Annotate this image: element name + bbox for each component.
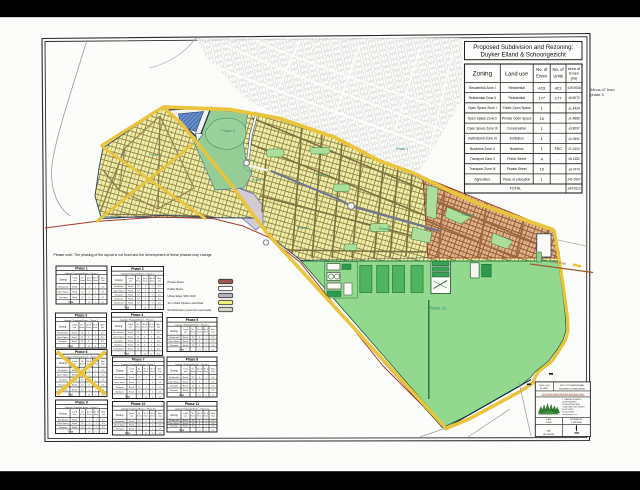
svg-text:Zoning: Zoning — [115, 279, 123, 282]
svg-text:Total: Total — [179, 429, 185, 432]
svg-text:Legend / Proposed Erven – Phas: Legend / Proposed Erven – Phase 6 — [64, 355, 98, 358]
svg-text:Residential: Residential — [114, 331, 124, 334]
svg-text:Legend / Proposed Erven – Phas: Legend / Proposed Erven – Phase 9 — [65, 406, 99, 409]
svg-text:Erven: Erven — [144, 370, 148, 373]
svg-text:Area: Area — [158, 367, 162, 370]
svg-text:Phase 3: Phase 3 — [149, 153, 162, 157]
svg-text:Resid.: Resid. — [129, 425, 135, 427]
svg-text:30 m Wide Pipeline and Road: 30 m Wide Pipeline and Road — [168, 301, 204, 305]
svg-text:±1.0591: ±1.0591 — [568, 137, 580, 141]
svg-text:Business: Business — [510, 147, 524, 151]
svg-text:Resid.: Resid. — [72, 419, 78, 421]
svg-text:(ha): (ha) — [102, 414, 105, 416]
svg-text:±41.0007: ±41.0007 — [567, 178, 580, 182]
svg-text:Phase 9: Phase 9 — [252, 178, 265, 182]
svg-text:TBC: TBC — [554, 146, 562, 151]
svg-text:SCALE: SCALE — [546, 421, 553, 424]
svg-text:A1 SHEET: A1 SHEET — [540, 387, 548, 390]
svg-text:Transport: Transport — [59, 296, 68, 299]
svg-text:Phase 9: Phase 9 — [75, 401, 88, 405]
svg-text:Phase 7: Phase 7 — [132, 358, 145, 362]
svg-text:Resid.: Resid. — [72, 297, 78, 299]
svg-text:Erven: Erven — [144, 414, 148, 417]
svg-text:Residential: Residential — [509, 96, 526, 100]
svg-text:Phase 5: Phase 5 — [186, 318, 199, 322]
svg-text:Resid.: Resid. — [128, 341, 134, 343]
svg-text:Phase 3: Phase 3 — [75, 314, 88, 318]
svg-text:Resid.: Resid. — [128, 303, 134, 305]
svg-text:Residential Zone I: Residential Zone I — [469, 86, 496, 90]
svg-text:177: 177 — [555, 96, 562, 101]
svg-text:Total: Total — [68, 393, 74, 396]
svg-text:Open Space: Open Space — [168, 381, 180, 383]
svg-text:177: 177 — [538, 96, 545, 101]
svg-text:Area: Area — [211, 328, 215, 331]
svg-text:Place of education: Place of education — [503, 177, 530, 181]
svg-text:10: 10 — [539, 167, 544, 172]
svg-text:Please note: The phasing of th: Please note: The phasing of the layout i… — [54, 253, 213, 257]
svg-text:Residential Zone II: Residential Zone II — [469, 96, 497, 100]
svg-text:Resid.: Resid. — [129, 387, 135, 389]
svg-text:Residential: Residential — [114, 285, 124, 288]
svg-text:Erven: Erven — [197, 370, 201, 373]
svg-text:Institutional: Institutional — [114, 348, 125, 351]
svg-text:Transport: Transport — [170, 344, 179, 347]
svg-text:Resid.: Resid. — [72, 287, 78, 289]
svg-text:Open Space: Open Space — [58, 292, 70, 294]
svg-text:Open Space: Open Space — [57, 375, 69, 377]
svg-text:Resid.: Resid. — [183, 341, 189, 343]
svg-text:Phase 6: Phase 6 — [462, 213, 475, 217]
svg-text:Phase 2: Phase 2 — [379, 227, 392, 231]
svg-text:Legend / Proposed Erven – Phas: Legend / Proposed Erven – Phase 2 — [121, 272, 155, 275]
svg-text:Total: Total — [179, 394, 185, 397]
svg-text:Area: Area — [211, 367, 215, 370]
svg-text:Legend / Proposed Erven – Phas: Legend / Proposed Erven – Phase 7 — [121, 363, 155, 366]
svg-text:(ha): (ha) — [571, 76, 578, 80]
svg-text:Erven: Erven — [569, 72, 579, 76]
svg-text:K. MADIKANE: K. MADIKANE — [571, 421, 583, 424]
svg-text:DESIGNED BY: DESIGNED BY — [570, 419, 583, 421]
svg-text:Erven: Erven — [94, 279, 98, 282]
svg-text:Area of: Area of — [568, 67, 581, 71]
svg-text:Erven: Erven — [204, 414, 208, 417]
svg-text:Resid.: Resid. — [129, 428, 135, 430]
svg-text:Business: Business — [116, 392, 124, 394]
svg-text:ERF 2712 FISANTEKRAAL: ERF 2712 FISANTEKRAAL — [560, 384, 585, 387]
svg-text:Transport Zone II: Transport Zone II — [470, 157, 495, 161]
svg-text:Resid.: Resid. — [72, 385, 78, 387]
svg-text:Public Street: Public Street — [168, 287, 183, 291]
svg-text:Transport: Transport — [58, 340, 67, 343]
svg-text:No. of: No. of — [536, 67, 548, 72]
svg-text:SCALE 1:2500: SCALE 1:2500 — [539, 384, 550, 387]
svg-text:Zoning: Zoning — [116, 369, 124, 372]
svg-text:Area: Area — [158, 277, 162, 280]
svg-text:Resid.: Resid. — [72, 427, 78, 429]
svg-text:Erven: Erven — [80, 413, 84, 416]
svg-text:Business: Business — [170, 390, 178, 392]
svg-text:Resid.: Resid. — [183, 377, 189, 379]
svg-text:Open Space Zone III: Open Space Zone III — [467, 127, 498, 131]
svg-text:Business: Business — [115, 345, 123, 347]
svg-text:Residential: Residential — [58, 369, 68, 372]
svg-text:(ha): (ha) — [158, 371, 161, 373]
svg-text:Erven: Erven — [191, 414, 195, 417]
svg-text:Open Space: Open Space — [113, 336, 125, 338]
svg-text:Private Street: Private Street — [507, 167, 527, 171]
svg-text:Erven: Erven — [94, 413, 98, 416]
svg-text:Resid.: Resid. — [183, 381, 189, 383]
svg-text:Conservation: Conservation — [507, 127, 527, 131]
svg-text:info@planning.co.za: info@planning.co.za — [562, 414, 577, 416]
svg-text:Phase 8: Phase 8 — [186, 358, 199, 362]
svg-text:Duyker Elland & Schoongezicht: Duyker Elland & Schoongezicht — [481, 51, 567, 58]
svg-text:Phase 2: Phase 2 — [131, 267, 144, 271]
svg-text:Erven: Erven — [137, 414, 141, 417]
svg-text:Residential: Residential — [115, 420, 125, 423]
svg-text:Public Open Space: Public Open Space — [503, 106, 531, 110]
svg-text:Private Open Space: Private Open Space — [502, 116, 532, 120]
svg-text:Residential: Residential — [169, 336, 179, 339]
svg-text:Erven: Erven — [80, 326, 84, 329]
svg-text:Resid.: Resid. — [129, 392, 135, 394]
svg-text:Total: Total — [125, 432, 131, 435]
svg-text:Minus 47 from: Minus 47 from — [591, 88, 615, 92]
svg-text:Transport Zone III: Transport Zone III — [469, 167, 495, 171]
svg-text:Erven: Erven — [536, 73, 548, 78]
svg-text:Legend / Proposed Erven – Phas: Legend / Proposed Erven – Phase 11 — [175, 407, 210, 410]
svg-text:Public Street: Public Street — [507, 157, 526, 161]
svg-text:Residential: Residential — [58, 286, 68, 289]
svg-text:PROPOSED SUBDIVISION AND REZON: PROPOSED SUBDIVISION AND REZONING PLAN — [542, 393, 584, 396]
svg-text:Area: Area — [158, 412, 162, 415]
svg-text:Phase 6: Phase 6 — [75, 350, 88, 354]
svg-text:Resid.: Resid. — [128, 286, 134, 288]
svg-text:Erven: Erven — [191, 330, 195, 333]
svg-text:Institutional: Institutional — [114, 302, 125, 305]
svg-text:423: 423 — [555, 85, 562, 90]
svg-text:Open Space: Open Space — [113, 290, 125, 292]
svg-text:Zoning: Zoning — [59, 325, 67, 328]
svg-text:Transport: Transport — [115, 427, 124, 430]
svg-text:Zoning: Zoning — [59, 278, 67, 281]
svg-text:Area: Area — [101, 323, 105, 326]
svg-text:Open Space: Open Space — [114, 425, 126, 427]
svg-text:Resid.: Resid. — [72, 333, 78, 335]
svg-text:Residential: Residential — [509, 86, 526, 90]
svg-text:Phase 10: Phase 10 — [131, 402, 145, 406]
svg-text:Resid.: Resid. — [128, 349, 134, 351]
svg-text:10: 10 — [539, 116, 544, 121]
svg-text:Zoning: Zoning — [115, 325, 123, 328]
svg-text:Resid.: Resid. — [183, 337, 189, 339]
svg-text:Resid.: Resid. — [183, 345, 189, 347]
svg-text:Phase 7: Phase 7 — [316, 173, 329, 177]
svg-text:(ha): (ha) — [157, 326, 160, 328]
svg-text:Erven: Erven — [137, 370, 141, 373]
svg-text:Erven: Erven — [197, 414, 201, 417]
svg-text:AS SHOWN: AS SHOWN — [543, 433, 554, 436]
svg-text:Open Space Zone II: Open Space Zone II — [468, 116, 498, 120]
svg-text:Resid.: Resid. — [183, 386, 189, 388]
svg-text:Legend / Proposed Erven – Phas: Legend / Proposed Erven – Phase 10 — [121, 407, 157, 410]
svg-text:Erven: Erven — [87, 413, 91, 416]
svg-text:Resid.: Resid. — [128, 345, 134, 347]
svg-text:Business: Business — [115, 299, 123, 301]
svg-text:Residential: Residential — [58, 332, 68, 335]
svg-text:MAY: MAY — [547, 429, 552, 432]
svg-text:Transport: Transport — [115, 386, 124, 389]
svg-text:Open Space: Open Space — [168, 341, 180, 343]
svg-text:Residential: Residential — [169, 376, 179, 379]
svg-text:Erven: Erven — [86, 326, 90, 329]
svg-text:(ha): (ha) — [158, 280, 161, 282]
svg-text:Resid.: Resid. — [129, 382, 135, 384]
svg-text:REZONING & SUBDIVISION: REZONING & SUBDIVISION — [559, 389, 585, 391]
svg-text:Phase 1: Phase 1 — [396, 147, 409, 151]
svg-text:Institution: Institution — [510, 137, 524, 141]
svg-text:Resid.: Resid. — [183, 390, 189, 392]
svg-text:Transport: Transport — [59, 426, 68, 429]
svg-text:Area: Area — [101, 360, 105, 363]
svg-text:Residential: Residential — [58, 418, 68, 421]
svg-text:(ha): (ha) — [101, 280, 104, 282]
svg-text:Business Zone II: Business Zone II — [470, 147, 495, 151]
svg-text:Total: Total — [68, 301, 74, 304]
svg-text:Erven: Erven — [204, 370, 208, 373]
svg-text:Erven: Erven — [93, 326, 97, 329]
svg-text:Erven: Erven — [87, 279, 91, 282]
svg-text:±1.4434: ±1.4434 — [568, 106, 580, 110]
svg-text:Open Space Zone I: Open Space Zone I — [468, 106, 497, 110]
svg-text:Legend / Proposed Erven – Phas: Legend / Proposed Erven – Phase 3 — [64, 319, 98, 322]
svg-text:Open Space: Open Space — [114, 382, 126, 384]
svg-text:Zoning: Zoning — [59, 412, 67, 415]
svg-text:Open Space: Open Space — [57, 337, 69, 339]
svg-text:TOTAL: TOTAL — [509, 186, 521, 190]
svg-text:±1.2402: ±1.2402 — [568, 147, 580, 151]
svg-text:Residential: Residential — [115, 376, 125, 379]
svg-text:Land use: Land use — [505, 72, 528, 78]
svg-text:Erven: Erven — [80, 279, 84, 282]
svg-text:phase 3: phase 3 — [591, 93, 604, 97]
svg-text:Phase 4: Phase 4 — [131, 313, 144, 317]
svg-text:±1.4886: ±1.4886 — [568, 117, 580, 121]
svg-text:Erven: Erven — [149, 325, 153, 328]
svg-text:Resid.: Resid. — [72, 423, 78, 425]
svg-text:Resid.: Resid. — [128, 332, 134, 334]
svg-text:Area: Area — [211, 412, 215, 415]
svg-text:Total: Total — [124, 306, 130, 309]
svg-text:Transport: Transport — [115, 294, 124, 297]
svg-text:Zoning: Zoning — [116, 414, 124, 417]
svg-text:±94.9112: ±94.9112 — [567, 186, 580, 190]
svg-text:Erven: Erven — [197, 330, 201, 333]
svg-text:Erven: Erven — [150, 414, 154, 417]
svg-text:Phase 11: Phase 11 — [185, 402, 199, 406]
svg-text:DATE: DATE — [546, 418, 551, 421]
svg-text:Zoning: Zoning — [170, 369, 178, 372]
svg-text:Erven: Erven — [80, 362, 84, 365]
svg-text:Resid.: Resid. — [128, 336, 134, 338]
svg-text:Erven: Erven — [204, 330, 208, 333]
svg-text:Resid.: Resid. — [128, 299, 134, 301]
svg-text:Area: Area — [157, 323, 161, 326]
svg-text:Erven: Erven — [150, 279, 154, 282]
svg-text:Total: Total — [179, 348, 185, 351]
svg-text:Zoning: Zoning — [473, 71, 493, 78]
svg-text:±5.1382: ±5.1382 — [568, 157, 580, 161]
svg-text:Resid.: Resid. — [72, 341, 78, 343]
svg-text:Resid.: Resid. — [128, 290, 134, 292]
svg-text:±6.5072: ±6.5072 — [568, 96, 580, 100]
svg-text:423: 423 — [538, 85, 545, 90]
svg-text:±29.9046: ±29.9046 — [567, 86, 580, 90]
svg-text:Zoning: Zoning — [170, 414, 178, 417]
svg-text:Erven: Erven — [136, 279, 140, 282]
svg-text:Phase 4: Phase 4 — [221, 129, 234, 133]
svg-text:Legend / Proposed Erven – Phas: Legend / Proposed Erven – Phase 5 — [175, 323, 209, 326]
svg-text:Transport: Transport — [114, 340, 123, 343]
svg-text:Transport: Transport — [170, 385, 179, 388]
svg-text:(ha): (ha) — [158, 415, 161, 417]
svg-text:Resid.: Resid. — [72, 337, 78, 339]
svg-text:Zoning: Zoning — [170, 330, 178, 333]
svg-text:Total: Total — [68, 430, 74, 433]
svg-text:Open Space: Open Space — [57, 423, 69, 425]
svg-text:Resid.: Resid. — [129, 377, 135, 379]
svg-text:Phase 5: Phase 5 — [297, 226, 310, 230]
svg-text:Erven: Erven — [142, 325, 146, 328]
svg-text:Legend / Proposed Erven – Phas: Legend / Proposed Erven – Phase 4 — [120, 318, 154, 321]
svg-text:Total: Total — [68, 345, 74, 348]
svg-text:Zoning: Zoning — [59, 362, 67, 365]
svg-text:Total: Total — [124, 352, 130, 355]
svg-text:Total: Total — [125, 395, 131, 398]
svg-text:No. of: No. of — [553, 67, 565, 72]
svg-text:(ha): (ha) — [101, 363, 104, 365]
svg-text:Area: Area — [102, 410, 106, 413]
svg-text:Resid.: Resid. — [129, 421, 135, 423]
svg-text:Resid.: Resid. — [128, 295, 134, 297]
svg-text:Urban Edge: SDF 2019: Urban Edge: SDF 2019 — [168, 294, 196, 298]
svg-text:Legend / Proposed Erven – Phas: Legend / Proposed Erven – Phase 1 — [65, 272, 99, 275]
svg-text:(ha): (ha) — [211, 371, 214, 373]
svg-text:(ha): (ha) — [211, 331, 214, 333]
svg-text:Private Street: Private Street — [168, 280, 185, 284]
svg-text:(ha): (ha) — [101, 327, 104, 329]
svg-text:Resid.: Resid. — [72, 390, 78, 392]
svg-text:Phase 11: Phase 11 — [427, 306, 447, 311]
svg-text:Agriculture: Agriculture — [475, 177, 491, 181]
svg-text:Institutional Zone III: Institutional Zone III — [468, 137, 497, 141]
svg-text:Area: Area — [101, 276, 105, 279]
svg-text:60 kVA Eskom power line (servi: 60 kVA Eskom power line (servitude) — [168, 308, 212, 312]
svg-text:Erven: Erven — [143, 279, 147, 282]
svg-text:Erven: Erven — [191, 370, 195, 373]
svg-text:Erven: Erven — [136, 325, 140, 328]
svg-text:Units: Units — [553, 73, 563, 78]
svg-text:±3.8097: ±3.8097 — [568, 127, 580, 131]
svg-text:(ha): (ha) — [211, 415, 214, 417]
svg-text:Erven: Erven — [150, 370, 154, 373]
svg-text:±0.7474: ±0.7474 — [568, 167, 580, 171]
svg-text:Legend / Proposed Erven – Phas: Legend / Proposed Erven – Phase 8 — [175, 363, 209, 366]
svg-text:Proposed Subdivision and Rezon: Proposed Subdivision and Rezoning: — [473, 44, 573, 51]
svg-text:Transport: Transport — [58, 379, 67, 382]
svg-text:Resid.: Resid. — [72, 292, 78, 294]
svg-text:Phase 1: Phase 1 — [75, 267, 88, 271]
